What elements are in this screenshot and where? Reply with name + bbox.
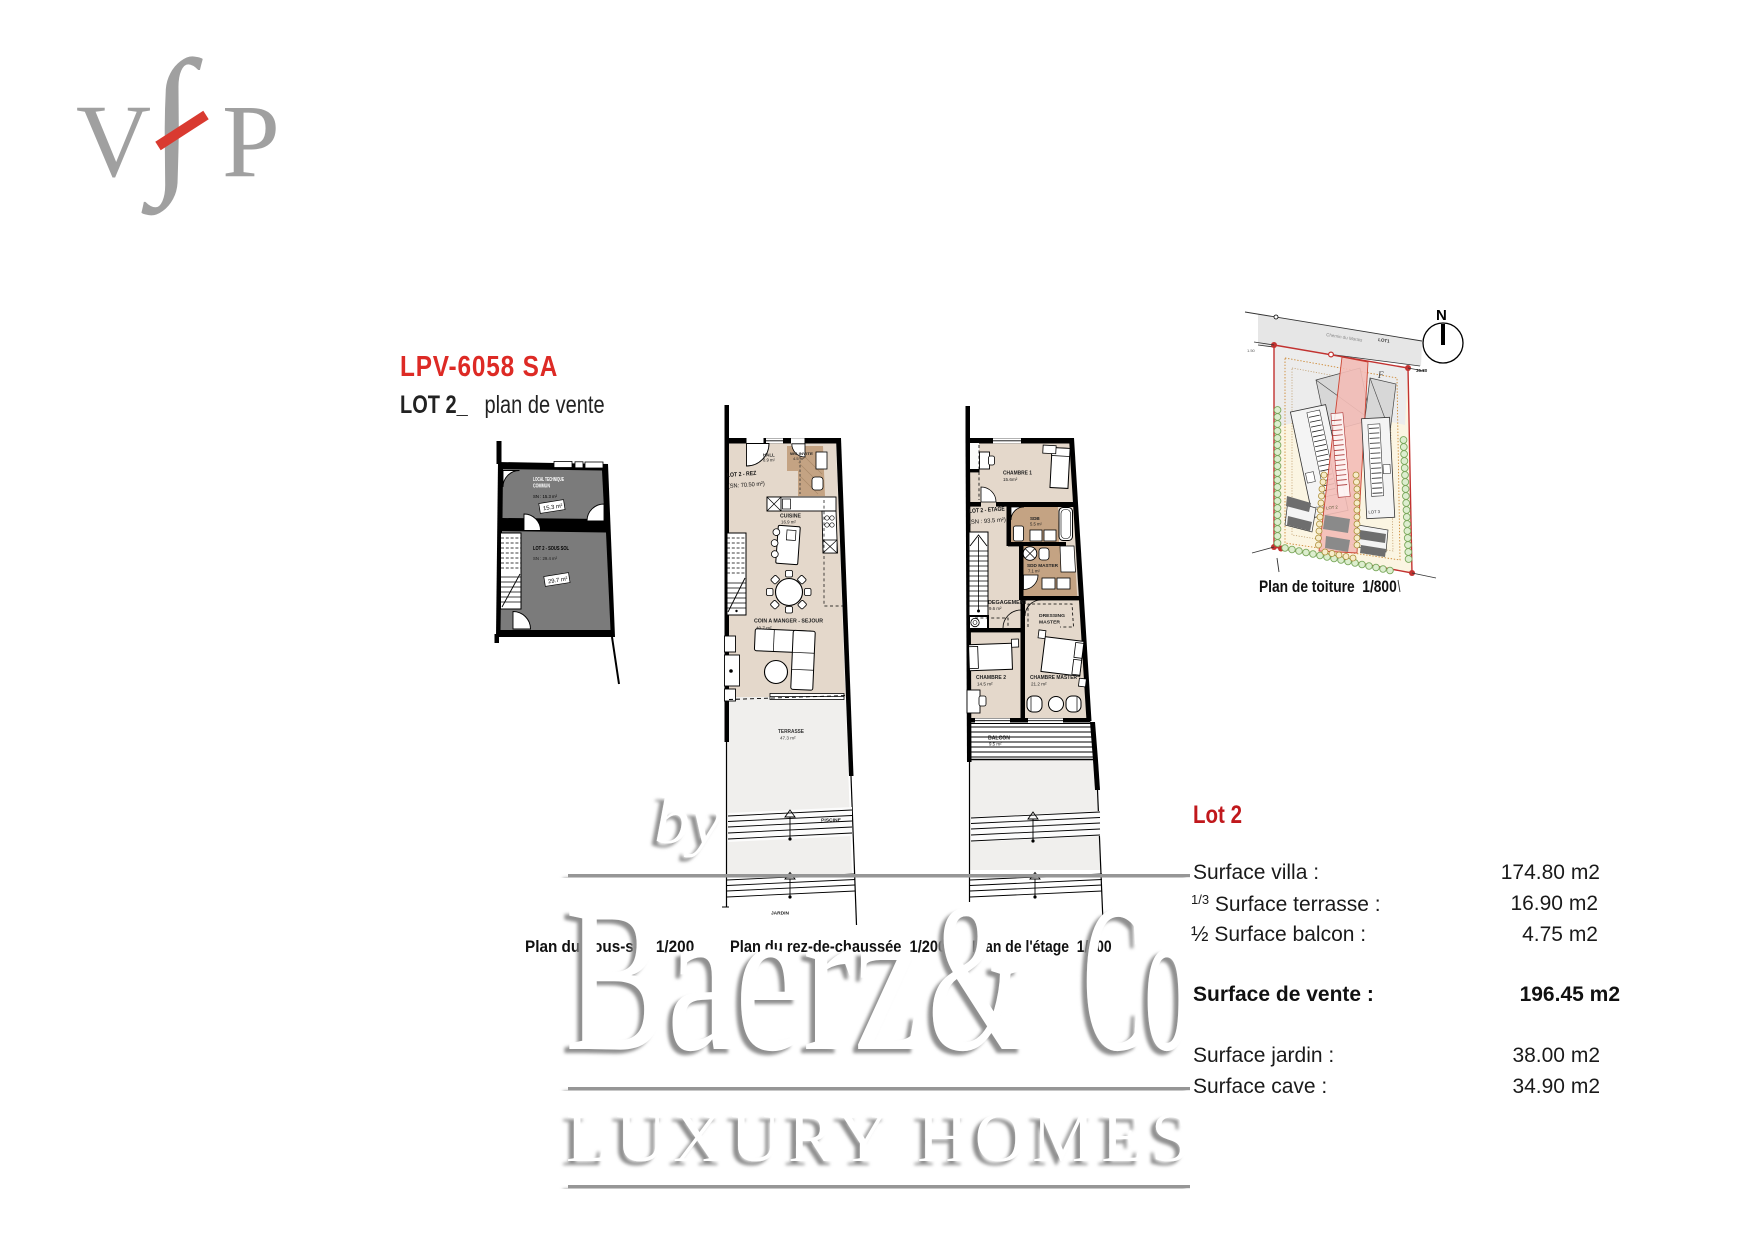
svg-text:16.9 m²: 16.9 m² [781,520,796,525]
svg-text:V: V [76,84,151,199]
svg-text:COIN A MANGER - SEJOUR: COIN A MANGER - SEJOUR [754,619,823,625]
svg-text:&: & [928,860,1025,1095]
svg-text:LUXURY HOMES: LUXURY HOMES [566,1100,1190,1177]
svg-text:DRESSING: DRESSING [1039,613,1065,619]
svg-text:7.1 m²: 7.1 m² [1028,569,1040,574]
svg-text:SN : 15.3 m²: SN : 15.3 m² [533,494,557,500]
svg-text:LOT 2: LOT 2 [1326,504,1339,510]
svg-text:COMMUN: COMMUN [533,484,550,490]
svg-text:36.80: 36.80 [1416,368,1428,373]
svg-text:N: N [1436,307,1447,324]
svg-text:8.9 m²: 8.9 m² [763,458,775,463]
svg-text:9.6 m²: 9.6 m² [989,606,1002,611]
svg-text:SN : 29.4 m²: SN : 29.4 m² [533,556,557,562]
svg-text:by: by [654,782,723,858]
svg-text:TERRASSE: TERRASSE [778,729,804,735]
svg-text:CHAMBRE MASTER: CHAMBRE MASTER [1030,675,1077,681]
svg-text:LOT 3: LOT 3 [1368,509,1380,515]
svg-text:SDD MASTER: SDD MASTER [1027,563,1059,568]
svg-text:4.5 m²: 4.5 m² [793,456,805,461]
svg-text:40.7 m²: 40.7 m² [756,626,772,631]
svg-text:P: P [222,84,280,199]
svg-text:15.6m²: 15.6m² [1003,477,1018,482]
svg-text:CHAMBRE 2: CHAMBRE 2 [976,675,1006,681]
svg-text:47.3 m²: 47.3 m² [780,736,796,741]
svg-text:F: F [1377,370,1384,380]
svg-text:Baerz: Baerz [565,860,922,1095]
svg-text:LOT 2 - SOUS SOL: LOT 2 - SOUS SOL [533,546,569,552]
svg-text:9.5 m²: 9.5 m² [989,742,1002,747]
svg-text:MASTER: MASTER [1039,620,1061,626]
svg-text:21.2 m²: 21.2 m² [1031,682,1047,687]
svg-text:CHAMBRE 1: CHAMBRE 1 [1003,471,1032,477]
svg-text:Co: Co [1083,860,1190,1095]
svg-text:SDB: SDB [1030,516,1040,521]
svg-text:14.5 m²: 14.5 m² [977,682,993,687]
svg-text:LOCAL TECHNIQUE: LOCAL TECHNIQUE [533,477,564,483]
svg-text:5.5 m²: 5.5 m² [1030,522,1042,527]
svg-text:1.50: 1.50 [1247,348,1256,353]
